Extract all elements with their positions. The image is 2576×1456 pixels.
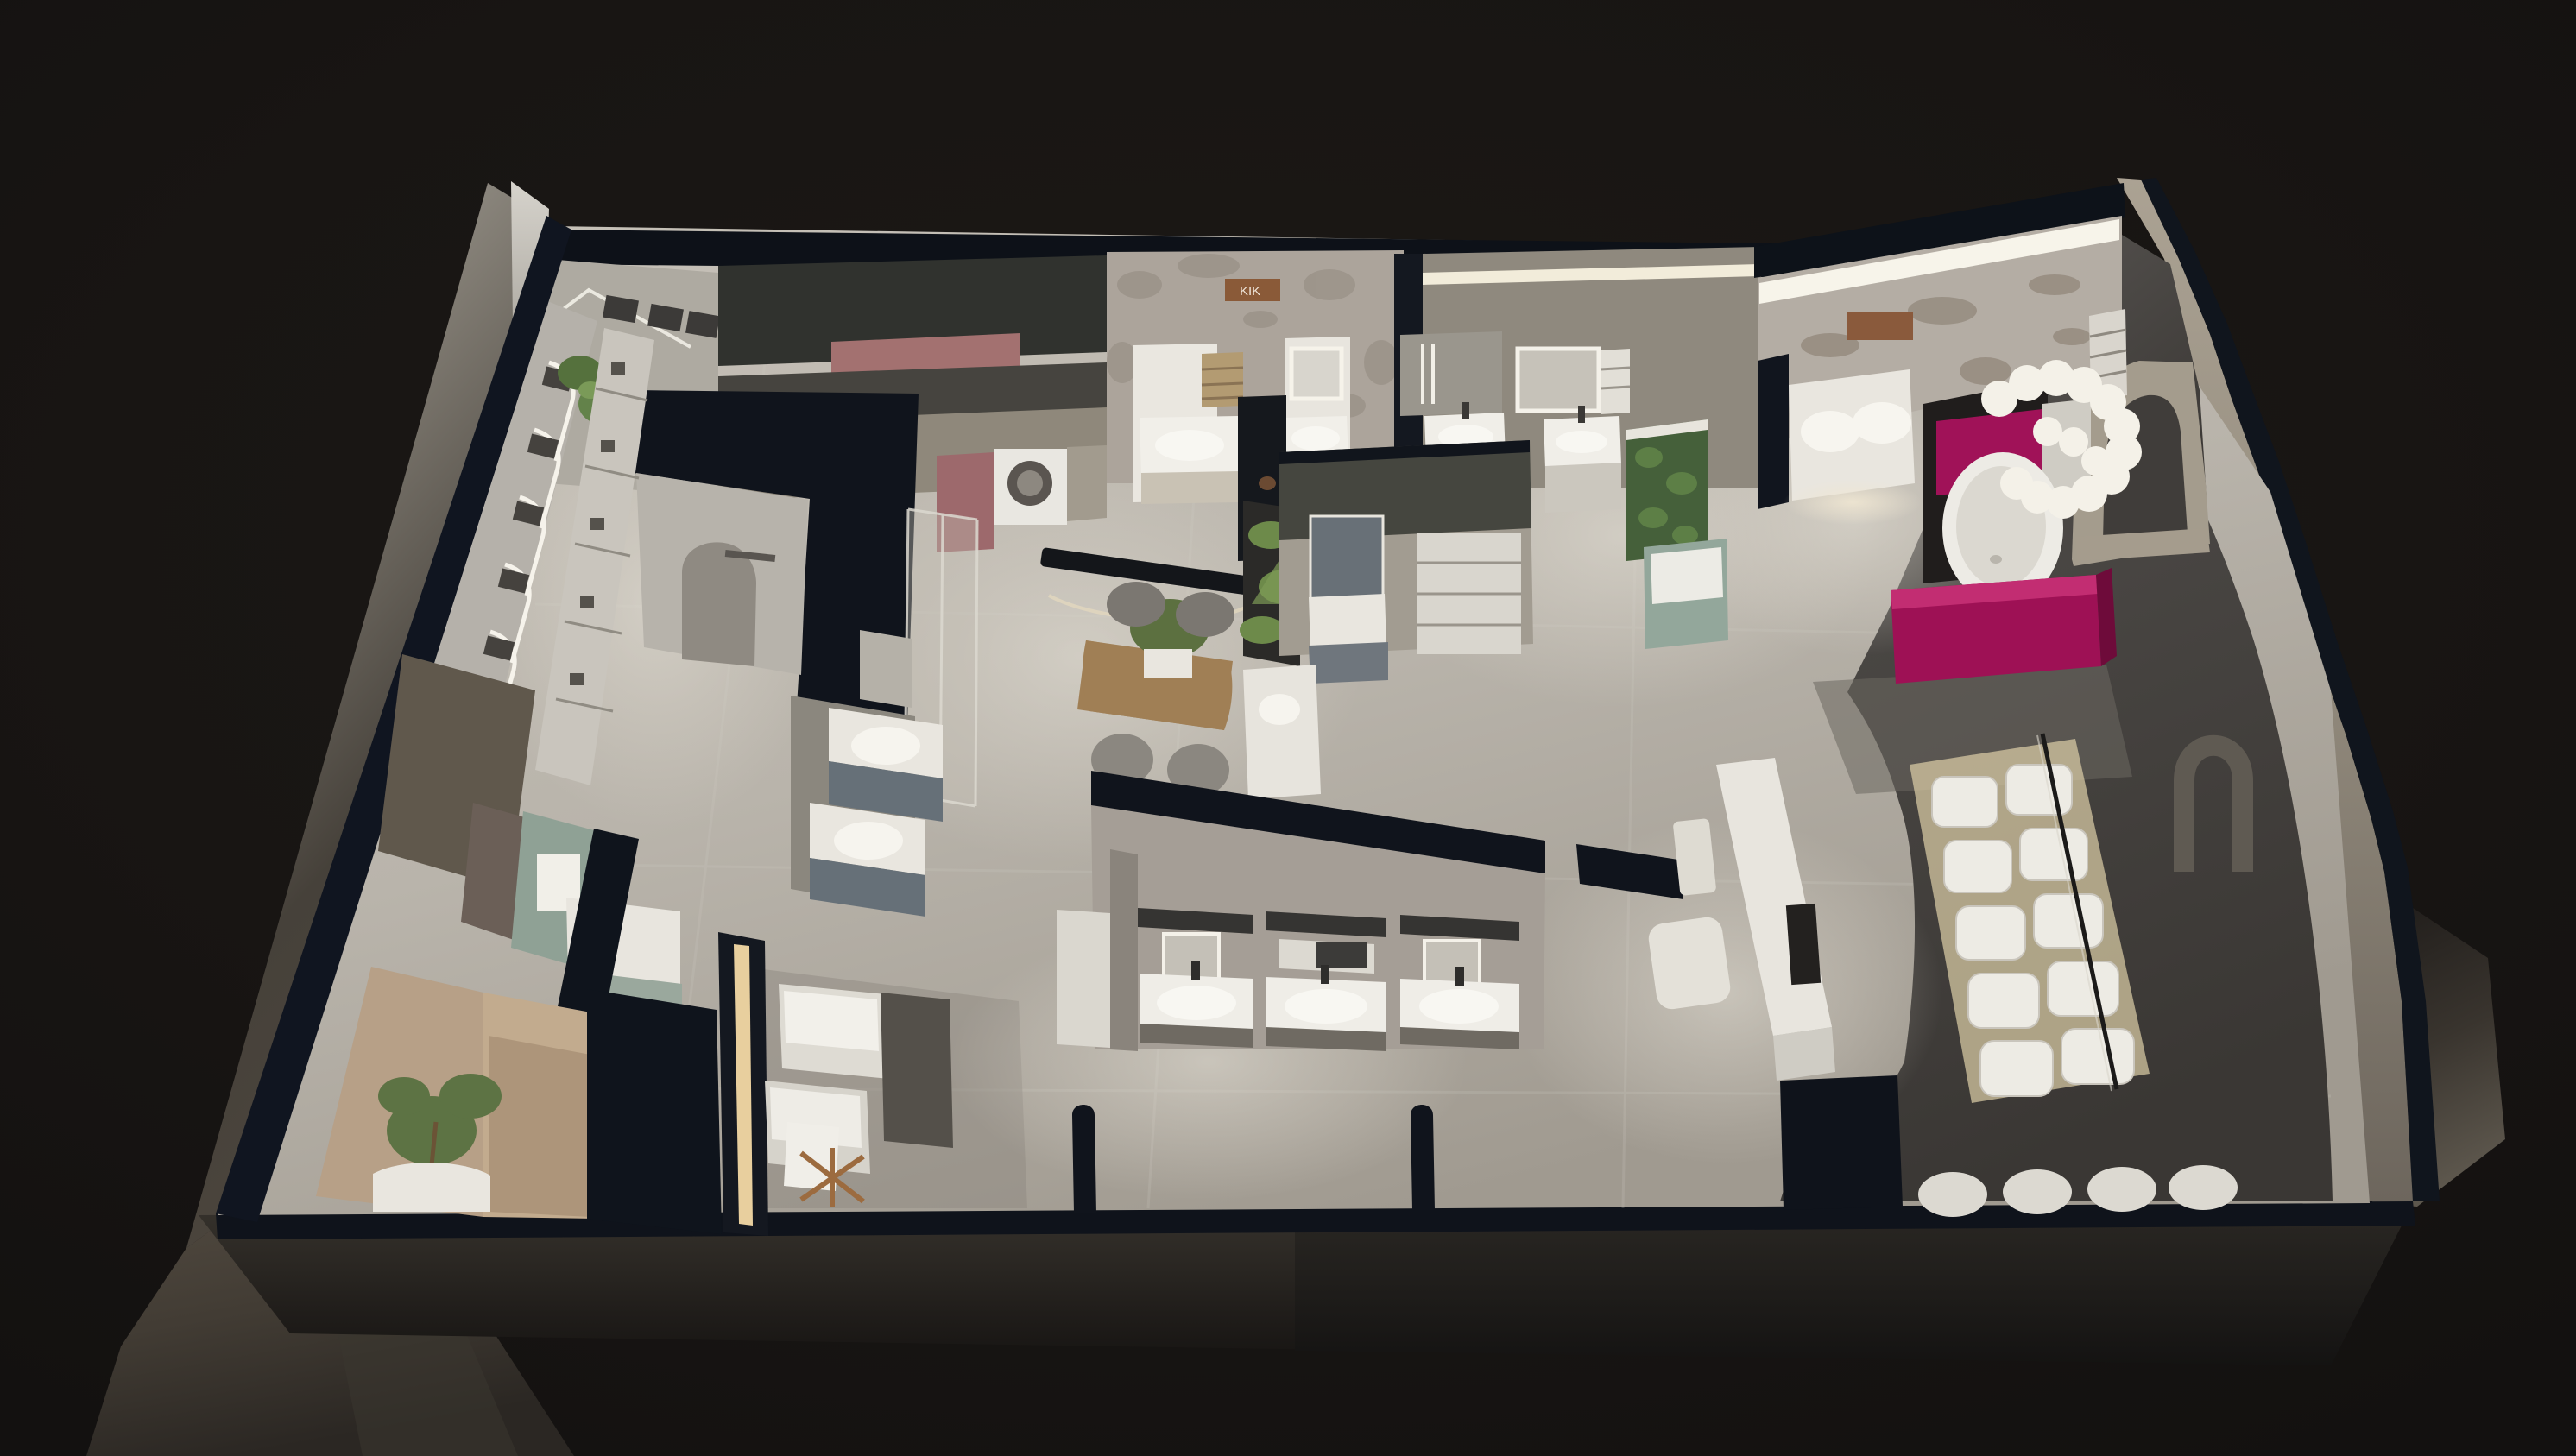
- svg-text:KIK: KIK: [1240, 284, 1260, 299]
